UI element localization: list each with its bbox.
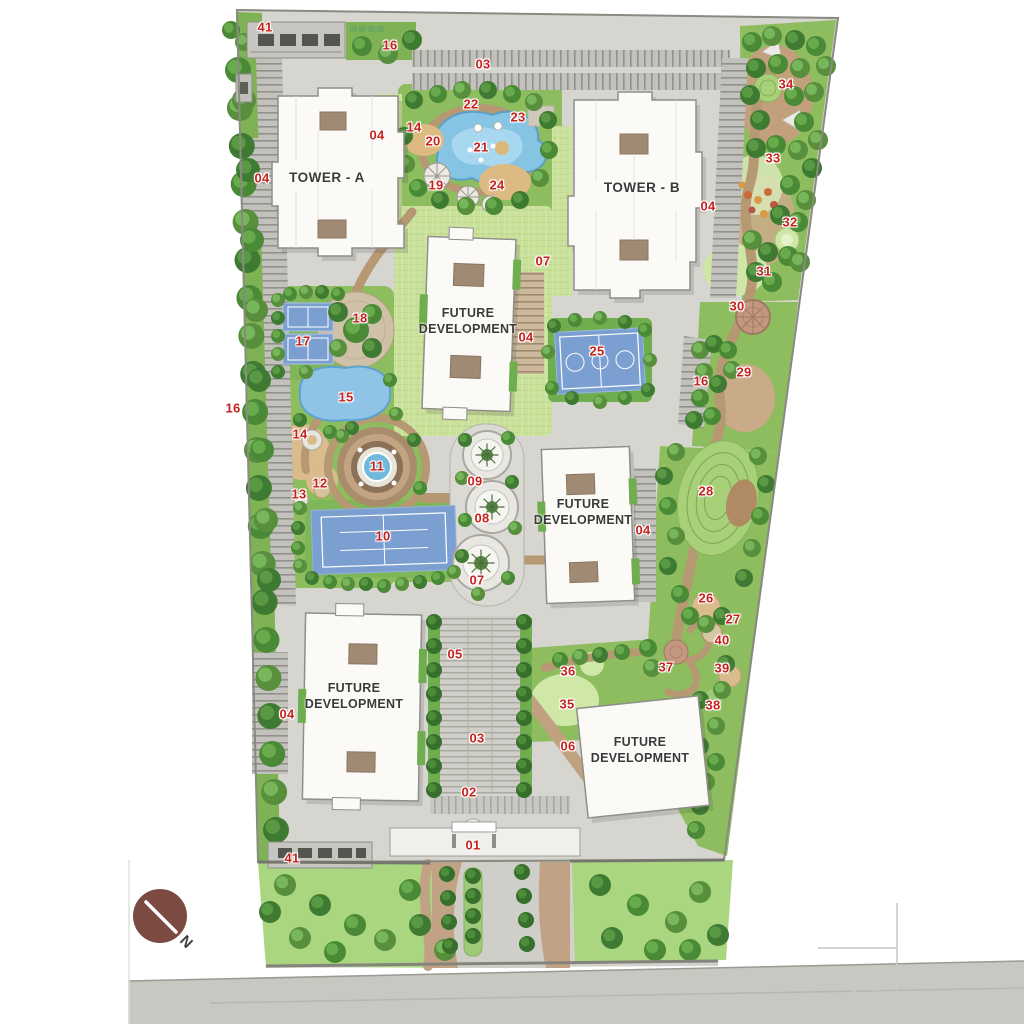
feature-12	[314, 482, 330, 498]
tower-a-footprint	[272, 88, 404, 256]
tower-b-footprint	[568, 92, 702, 298]
fountain-07	[453, 535, 509, 591]
tennis-courts-17	[283, 303, 333, 364]
plaza-37	[664, 640, 688, 664]
site-master-plan: TOWER - ATOWER - BFUTURE DEVELOPMENTFUTU…	[0, 0, 1024, 1024]
north-arrow	[133, 889, 187, 943]
future-dev-southeast-footprint	[577, 696, 710, 818]
basketball-court-25	[554, 328, 645, 395]
site-plan-canvas	[0, 0, 1024, 1024]
clubhouse-strip-south	[268, 842, 372, 868]
future-dev-center-footprint	[416, 226, 523, 421]
plaza-30	[736, 300, 770, 334]
round-pool-11	[337, 427, 417, 507]
future-dev-southwest-footprint	[296, 603, 428, 811]
leisure-pool-15	[300, 367, 390, 421]
future-dev-east-footprint	[535, 446, 640, 603]
tennis-court-10	[311, 506, 457, 575]
